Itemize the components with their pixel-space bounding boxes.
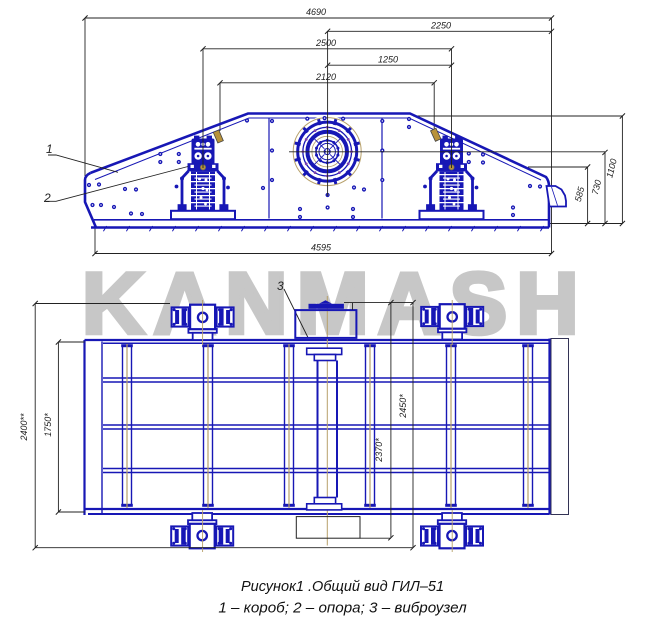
svg-text:1250: 1250 [378, 54, 398, 64]
svg-text:2400**: 2400** [19, 413, 29, 442]
svg-text:1750*: 1750* [43, 413, 53, 437]
svg-text:2450*: 2450* [398, 394, 408, 419]
svg-text:2120: 2120 [315, 72, 336, 82]
svg-text:4690: 4690 [306, 7, 326, 17]
svg-text:1 – короб; 2 – опора; 3 – вибр: 1 – короб; 2 – опора; 3 – виброузел [218, 600, 467, 617]
svg-text:1: 1 [46, 142, 53, 156]
svg-text:2250: 2250 [430, 21, 451, 31]
svg-text:2: 2 [43, 191, 51, 205]
svg-text:2370*: 2370* [374, 438, 384, 463]
svg-text:Рисунок1 .Общий вид ГИЛ–51: Рисунок1 .Общий вид ГИЛ–51 [241, 579, 444, 595]
svg-text:2500: 2500 [315, 38, 336, 48]
svg-text:4595: 4595 [311, 243, 332, 253]
svg-text:3: 3 [277, 279, 284, 293]
